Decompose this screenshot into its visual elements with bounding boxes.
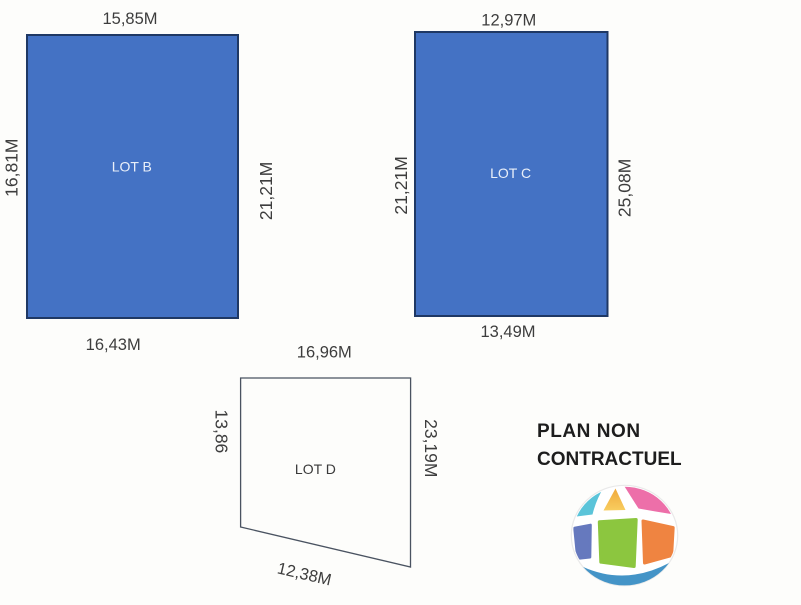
svg-text:LOT B: LOT B <box>112 159 152 175</box>
svg-text:LOT D: LOT D <box>295 461 336 477</box>
svg-text:CONTRACTUEL: CONTRACTUEL <box>537 449 682 470</box>
svg-text:PLAN NON: PLAN NON <box>537 421 641 442</box>
svg-text:13,86: 13,86 <box>212 410 232 454</box>
svg-text:15,85M: 15,85M <box>102 10 157 28</box>
svg-text:12,97M: 12,97M <box>481 12 536 30</box>
svg-text:16,43M: 16,43M <box>86 336 141 354</box>
svg-text:16,81M: 16,81M <box>2 139 22 197</box>
svg-text:13,49M: 13,49M <box>480 323 535 341</box>
svg-text:25,08M: 25,08M <box>614 159 634 217</box>
svg-text:23,19M: 23,19M <box>421 419 441 477</box>
svg-text:LOT C: LOT C <box>490 165 531 181</box>
svg-text:21,21M: 21,21M <box>391 156 411 214</box>
svg-text:16,96M: 16,96M <box>297 344 352 362</box>
svg-text:21,21M: 21,21M <box>256 162 276 220</box>
